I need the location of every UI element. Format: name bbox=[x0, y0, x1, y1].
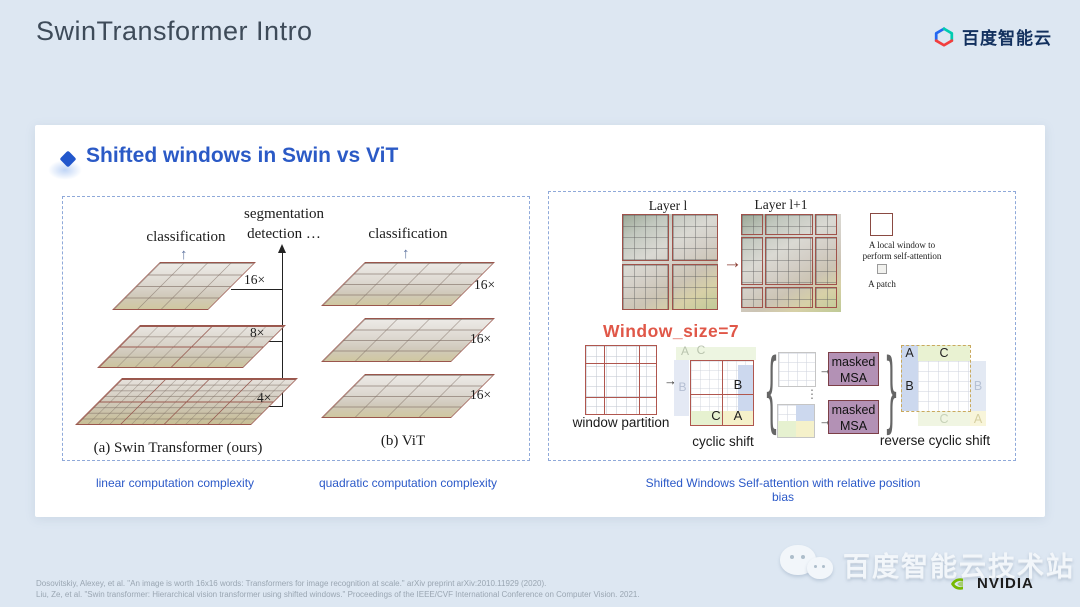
reverse-cyclic-shift-label: reverse cyclic shift bbox=[855, 433, 1015, 448]
layer-l-label: Layer l bbox=[618, 198, 718, 214]
cyclic-cell-a: A bbox=[731, 408, 745, 423]
wechat-icon bbox=[780, 543, 840, 589]
window bbox=[765, 214, 813, 235]
window-size-label: Window_size=7 bbox=[603, 321, 739, 342]
cyclic-cell-c: C bbox=[709, 408, 723, 423]
legend-patch-label: A patch bbox=[852, 279, 912, 290]
vit-classification-arrow-icon: ↑ bbox=[402, 246, 410, 261]
window bbox=[815, 214, 837, 235]
swin-scale-8x: 8× bbox=[250, 325, 264, 341]
citations: Dosovitskiy, Alexey, et al. "An image is… bbox=[36, 579, 796, 600]
layer-l1-label: Layer l+1 bbox=[731, 197, 831, 213]
masked-msa-line1: masked bbox=[829, 354, 878, 370]
slide-page: SwinTransformer Intro 百度智能云 Shifted wind… bbox=[0, 0, 1080, 607]
nvidia-icon bbox=[950, 576, 972, 592]
caption-linear: linear computation complexity bbox=[85, 476, 265, 490]
quad-b bbox=[796, 405, 814, 421]
window bbox=[741, 287, 763, 308]
legend-local-window-swatch bbox=[870, 213, 893, 236]
vit-scale-2: 16× bbox=[470, 331, 491, 347]
caption-quadratic: quadratic computation complexity bbox=[318, 476, 498, 490]
brand-name: 百度智能云 bbox=[962, 24, 1052, 49]
wechat-bubble-small bbox=[807, 557, 833, 579]
window bbox=[622, 264, 669, 311]
vit-caption: (b) ViT bbox=[343, 433, 463, 450]
vertical-dots-icon: ⋮ bbox=[806, 387, 818, 401]
masked-msa-line2: MSA bbox=[829, 370, 878, 386]
section-heading: Shifted windows in Swin vs ViT bbox=[86, 144, 398, 168]
window bbox=[815, 287, 837, 308]
swin-bracket-16x bbox=[231, 289, 283, 290]
cyclic-shift-grid: B C A bbox=[690, 360, 754, 426]
cyclic-ghost-b: B bbox=[676, 380, 689, 394]
legend-patch-swatch bbox=[877, 264, 887, 274]
window bbox=[765, 237, 813, 285]
window bbox=[741, 237, 763, 285]
legend-line-2: perform self-attention bbox=[832, 251, 972, 262]
swin-detection-label: detection … bbox=[224, 226, 344, 243]
window-partition-label: window partition bbox=[551, 415, 691, 430]
quad-a bbox=[796, 421, 814, 437]
reverse-cell-a: A bbox=[901, 345, 918, 361]
citation-1: Dosovitskiy, Alexey, et al. "An image is… bbox=[36, 579, 796, 590]
caption-shifted-windows: Shifted Windows Self-attention with rela… bbox=[633, 476, 933, 504]
nvidia-logo: NVIDIA bbox=[950, 575, 1034, 592]
reverse-cell-c: C bbox=[918, 345, 970, 361]
cyclic-cell-b: B bbox=[729, 377, 747, 392]
swin-caption: (a) Swin Transformer (ours) bbox=[68, 440, 288, 457]
cyclic-ghost-c: C bbox=[694, 343, 708, 357]
layer-transition-arrow-icon: → bbox=[723, 253, 742, 272]
nvidia-wordmark: NVIDIA bbox=[977, 575, 1034, 592]
window bbox=[765, 287, 813, 308]
cyclic-ghost-a: A bbox=[678, 344, 692, 358]
masked-msa-box-2: masked MSA bbox=[828, 400, 879, 434]
msa-window-shifted bbox=[777, 404, 815, 438]
window bbox=[672, 264, 719, 311]
reverse-ghost-c: C bbox=[918, 411, 970, 426]
swin-scale-16x: 16× bbox=[244, 272, 265, 288]
layer-l-grid bbox=[622, 214, 718, 310]
reverse-cell-b: B bbox=[901, 361, 918, 411]
right-brace: } bbox=[884, 352, 899, 439]
vit-scale-3: 16× bbox=[470, 387, 491, 403]
swin-scale-4x: 4× bbox=[257, 390, 271, 406]
swin-segmentation-label: segmentation bbox=[224, 206, 344, 223]
masked-msa-line2: MSA bbox=[829, 418, 878, 434]
legend-line-1: A local window to bbox=[832, 240, 972, 251]
window bbox=[672, 214, 719, 261]
vit-scale-1: 16× bbox=[474, 277, 495, 293]
citation-2: Liu, Ze, et al. "Swin transformer: Hiera… bbox=[36, 590, 796, 601]
swin-classification-arrow-icon: ↑ bbox=[180, 247, 188, 262]
masked-msa-box-1: masked MSA bbox=[828, 352, 879, 386]
window-partition-grid bbox=[585, 345, 657, 415]
window bbox=[622, 214, 669, 261]
masked-msa-line1: masked bbox=[829, 402, 878, 418]
legend-local-window-label: A local window to perform self-attention bbox=[832, 240, 972, 262]
reverse-ghost-a: A bbox=[970, 411, 986, 426]
quad-c bbox=[778, 421, 796, 437]
page-title: SwinTransformer Intro bbox=[36, 16, 313, 47]
baidu-cloud-icon bbox=[933, 26, 955, 48]
msa-window-plain bbox=[778, 352, 816, 387]
window bbox=[741, 214, 763, 235]
layer-l1-grid bbox=[741, 214, 841, 312]
brand-logo: 百度智能云 bbox=[933, 24, 1052, 49]
vit-classification-label: classification bbox=[348, 226, 468, 243]
reverse-ghost-b: B bbox=[970, 361, 986, 411]
reverse-center-grid bbox=[918, 361, 970, 411]
